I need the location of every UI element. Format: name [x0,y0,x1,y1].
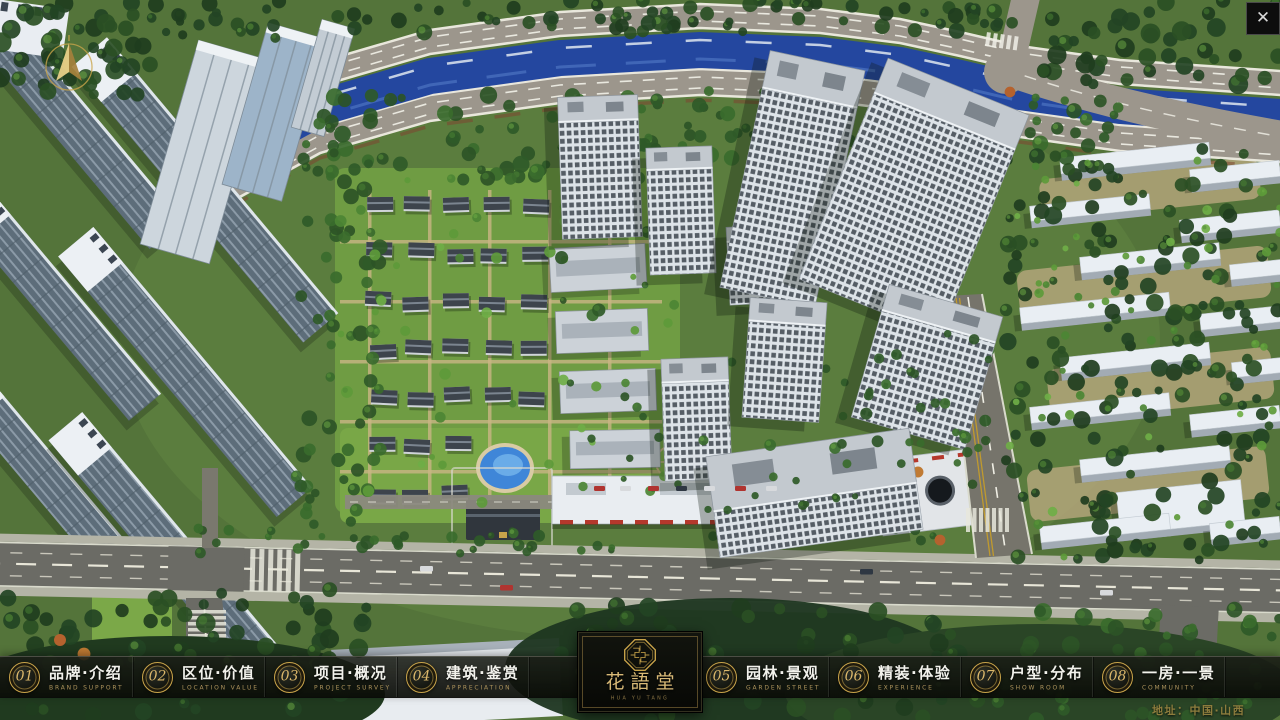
nav-item-brand[interactable]: 01 品牌·介绍 BRAND SUPPORT [0,657,132,697]
app-window: ✕ 01 品牌·介绍 BRAND SUPPORT 02 区位·价值 LOCATI… [0,0,1280,720]
nav-number: 03 [281,669,299,685]
nav-sublabel: SHOW ROOM [1010,684,1077,691]
nav-sublabel: APPRECIATION [446,684,513,691]
nav-sublabel: LOCATION VALUE [182,684,259,691]
nav-sublabel: GARDEN STREET [746,684,820,691]
nav-sublabel: BRAND SUPPORT [49,684,123,691]
nav-number: 05 [713,669,731,685]
nav-item-room-view[interactable]: 08 一房·一景 COMMUNITY [1092,657,1224,697]
nav-number: 08 [1109,669,1127,685]
nav-sublabel: PROJECT SURVEY [314,684,391,691]
nav-number-badge: 08 [1102,662,1133,693]
nav-number-badge: 05 [706,662,737,693]
masterplan-3d-view[interactable] [0,0,1280,720]
nav-label: 一房·一景 [1142,662,1215,683]
navbar-divider-segment [528,657,568,697]
nav-number-badge: 01 [9,662,40,693]
nav-item-location[interactable]: 02 区位·价值 LOCATION VALUE [132,657,264,697]
navbar-divider-segment [1224,657,1280,697]
brand-logo-panel[interactable]: 花語堂 HUA YU TANG [578,632,702,712]
nav-item-garden[interactable]: 05 园林·景观 GARDEN STREET [696,657,828,697]
nav-label: 精装·体验 [878,662,951,683]
nav-number: 02 [149,669,167,685]
nav-number: 04 [413,669,431,685]
nav-item-floorplan[interactable]: 07 户型·分布 SHOW ROOM [960,657,1092,697]
nav-number-badge: 02 [142,662,173,693]
nav-number-badge: 06 [838,662,869,693]
nav-item-interior[interactable]: 06 精装·体验 EXPERIENCE [828,657,960,697]
nav-item-architecture[interactable]: 04 建筑·鉴赏 APPRECIATION [396,657,528,697]
brand-seal-icon [623,638,657,672]
nav-label: 户型·分布 [1010,662,1083,683]
nav-sublabel: EXPERIENCE [878,684,945,691]
nav-number-badge: 07 [970,662,1001,693]
nav-number-badge: 04 [406,662,437,693]
tower-block[interactable] [727,296,827,432]
nav-label: 区位·价值 [182,662,266,683]
tower-block[interactable] [632,146,717,286]
brand-subtitle: HUA YU TANG [611,695,669,701]
brand-title: 花語堂 [599,672,680,693]
nav-label: 园林·景观 [746,662,827,683]
nav-label: 建筑·鉴赏 [446,662,519,683]
close-button[interactable]: ✕ [1246,2,1280,35]
nav-item-project[interactable]: 03 项目·概况 PROJECT SURVEY [264,657,396,697]
nav-number: 06 [845,669,863,685]
nav-label: 项目·概况 [314,662,398,683]
nav-number-badge: 03 [274,662,305,693]
project-address: 地址：中国·山西 [1152,702,1245,718]
compass-icon [40,34,98,96]
nav-sublabel: COMMUNITY [1142,684,1209,691]
nav-number: 01 [16,669,34,685]
tower-block[interactable] [544,95,643,250]
nav-label: 品牌·介绍 [49,662,130,683]
nav-number: 07 [977,669,995,685]
